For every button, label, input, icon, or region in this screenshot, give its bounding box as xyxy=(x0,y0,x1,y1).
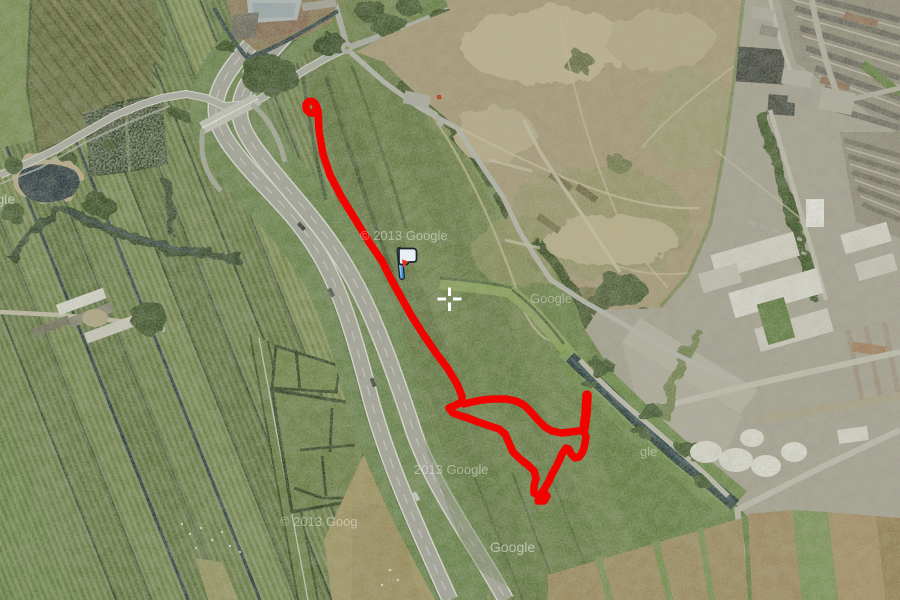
svg-text:Google: Google xyxy=(0,191,15,207)
svg-text:© 2013 Google: © 2013 Google xyxy=(360,228,448,243)
svg-text:2013 Google: 2013 Google xyxy=(414,462,488,477)
svg-text:Google: Google xyxy=(530,291,572,306)
svg-text:Google: Google xyxy=(490,539,535,555)
svg-text:gle: gle xyxy=(640,444,657,459)
svg-text:© 2013 Goog: © 2013 Goog xyxy=(280,514,358,529)
